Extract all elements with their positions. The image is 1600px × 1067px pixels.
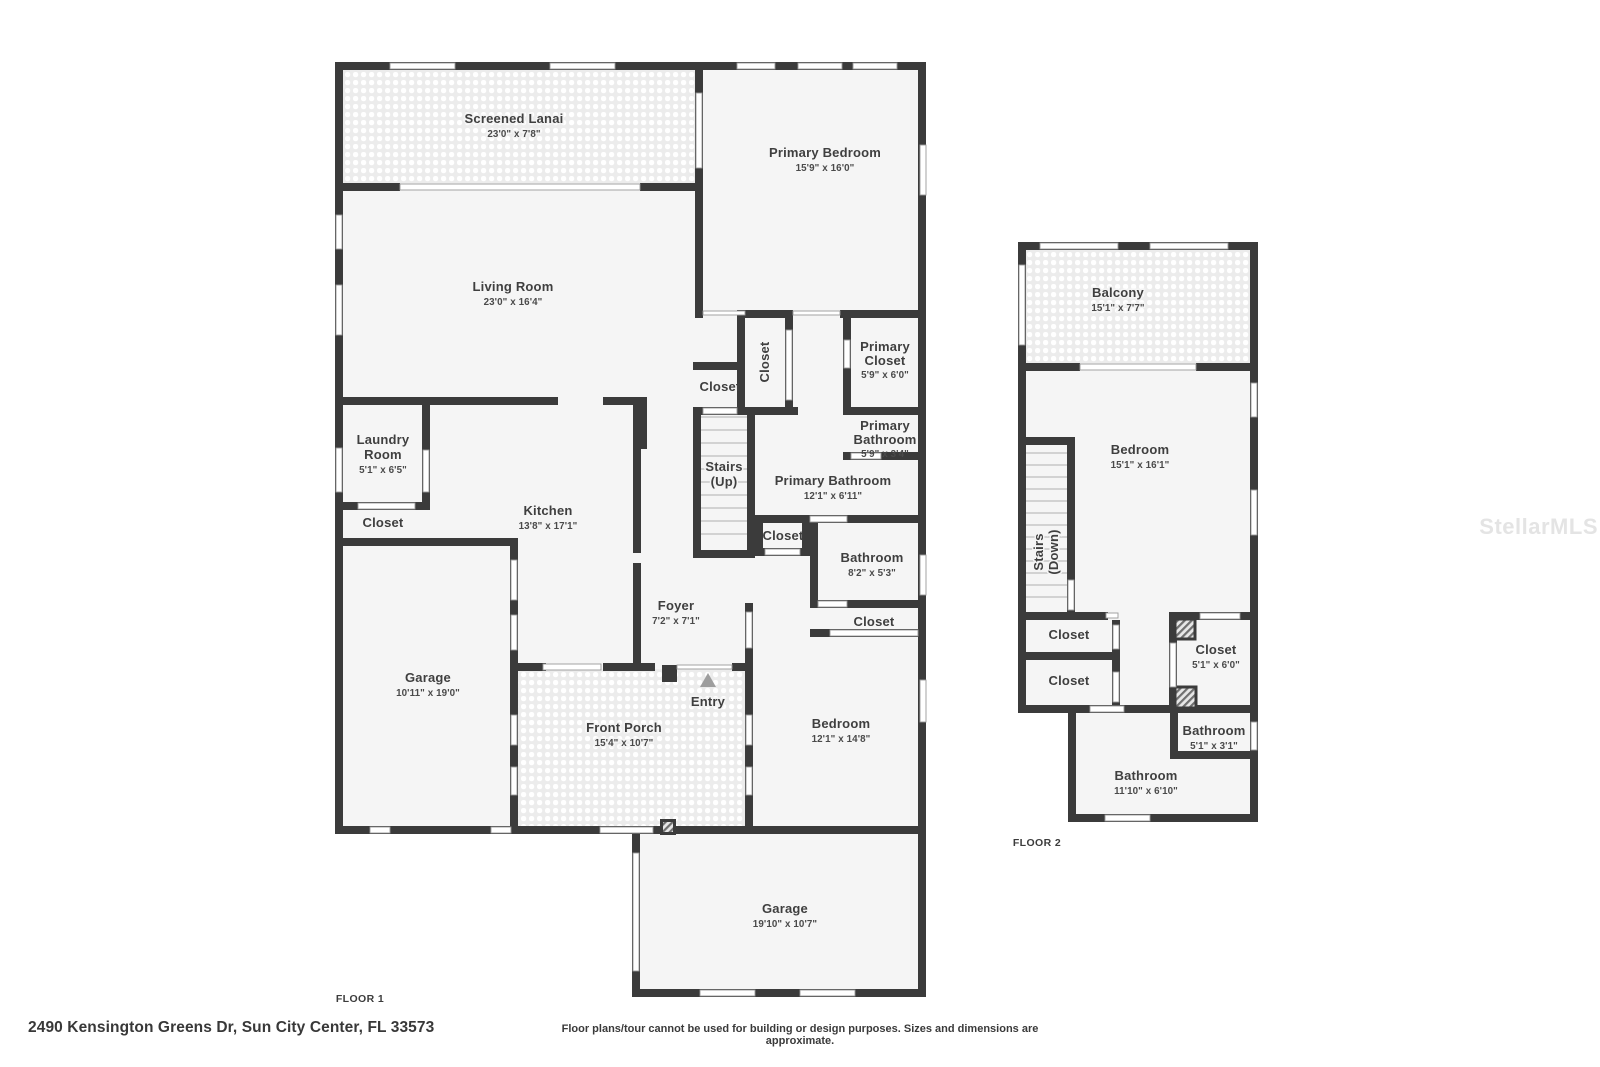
room-label-closet-vertical: Closet <box>757 341 772 382</box>
room-label-primary-bathroom: Primary Bathroom <box>775 473 892 488</box>
room-label-primary-closet-1: Primary <box>860 339 910 354</box>
room-label-bathroom: Bathroom <box>841 550 904 565</box>
floor1-footprint <box>335 62 926 997</box>
room-label-closet-hall: Closet <box>700 379 741 394</box>
room-label-primary-bathroom-small-1: Primary <box>860 418 910 433</box>
room-dims-bathroom-small: 5'1" x 3'1" <box>1190 741 1238 752</box>
room-label-closet-bedroom: Closet <box>854 614 895 629</box>
room-dims-bathroom: 8'2" x 5'3" <box>848 568 896 579</box>
room-dims-primary-bathroom: 12'1" x 6'11" <box>804 491 862 502</box>
room-dims-bedroom2: 15'1" x 16'1" <box>1111 460 1170 471</box>
room-label-bedroom2: Bedroom <box>1111 442 1169 457</box>
room-label-kitchen: Kitchen <box>523 503 572 518</box>
room-label-closet-main: Closet <box>1196 642 1237 657</box>
room-label-primary-closet-2: Closet <box>865 353 906 368</box>
room-dims-living-room: 23'0" x 16'4" <box>484 297 543 308</box>
room-dims-foyer: 7'2" x 7'1" <box>652 616 700 627</box>
room-label-laundry-2: Room <box>364 447 402 462</box>
disclaimer-text: Floor plans/tour cannot be used for buil… <box>540 1023 1060 1047</box>
room-label-entry: Entry <box>691 694 726 709</box>
room-label-laundry-1: Laundry <box>357 432 410 447</box>
room-dims-screened-lanai: 23'0" x 7'8" <box>487 129 540 140</box>
room-label-stairs-up-1: Stairs <box>705 459 742 474</box>
room-dims-balcony: 15'1" x 7'7" <box>1091 303 1144 314</box>
room-label-primary-bedroom: Primary Bedroom <box>769 145 881 160</box>
room-dims-closet-main: 5'1" x 6'0" <box>1192 660 1240 671</box>
floor1-plan: Screened Lanai 23'0" x 7'8" Primary Bedr… <box>328 55 940 1005</box>
room-dims-garage-side: 10'11" x 19'0" <box>396 688 460 699</box>
floor2-caption: FLOOR 2 <box>994 837 1080 849</box>
property-address: 2490 Kensington Greens Dr, Sun City Cent… <box>28 1019 434 1037</box>
room-label-closet-stairwell: Closet <box>763 528 804 543</box>
room-dims-kitchen: 13'8" x 17'1" <box>519 521 578 532</box>
room-label-stairs-down-1: Stairs <box>1031 533 1046 570</box>
room-label-garage-bottom: Garage <box>762 901 808 916</box>
room-label-stairs-up-2: (Up) <box>711 474 738 489</box>
room-label-balcony: Balcony <box>1092 285 1145 300</box>
room-dims-laundry: 5'1" x 6'5" <box>359 465 407 476</box>
room-dims-bedroom: 12'1" x 14'8" <box>812 734 871 745</box>
floor1-caption: FLOOR 1 <box>310 993 410 1005</box>
screened-lanai-texture <box>343 70 695 183</box>
room-label-bathroom-main: Bathroom <box>1115 768 1178 783</box>
closet-hatch-post-top <box>1175 619 1195 639</box>
room-label-bathroom-small: Bathroom <box>1183 723 1246 738</box>
room-dims-front-porch: 15'4" x 10'7" <box>595 738 654 749</box>
room-label-front-porch: Front Porch <box>586 720 662 735</box>
front-step-hatch <box>662 821 674 833</box>
room-label-living-room: Living Room <box>473 279 554 294</box>
room-label-closet-laundry: Closet <box>363 515 404 530</box>
closet-hatch-post-bottom <box>1175 687 1196 708</box>
room-label-foyer: Foyer <box>658 598 694 613</box>
room-label-closet-a: Closet <box>1049 627 1090 642</box>
room-label-primary-bathroom-small-2: Bathroom <box>854 432 917 447</box>
room-label-bedroom: Bedroom <box>812 716 870 731</box>
room-label-closet-b: Closet <box>1049 673 1090 688</box>
room-dims-bathroom-main: 11'10" x 6'10" <box>1114 786 1178 797</box>
room-dims-primary-closet: 5'9" x 6'0" <box>861 370 909 381</box>
floor2-plan: Balcony 15'1" x 7'7" Bedroom 15'1" x 16'… <box>1010 235 1266 850</box>
room-dims-primary-bathroom-small: 5'9" x 3'4" <box>861 449 909 460</box>
room-label-screened-lanai: Screened Lanai <box>465 111 564 126</box>
room-dims-garage-bottom: 19'10" x 10'7" <box>753 919 817 930</box>
room-dims-primary-bedroom: 15'9" x 16'0" <box>796 163 855 174</box>
stellar-mls-watermark: StellarMLS <box>1479 514 1598 540</box>
room-label-garage-side: Garage <box>405 670 451 685</box>
room-label-stairs-down-2: (Down) <box>1046 529 1061 574</box>
